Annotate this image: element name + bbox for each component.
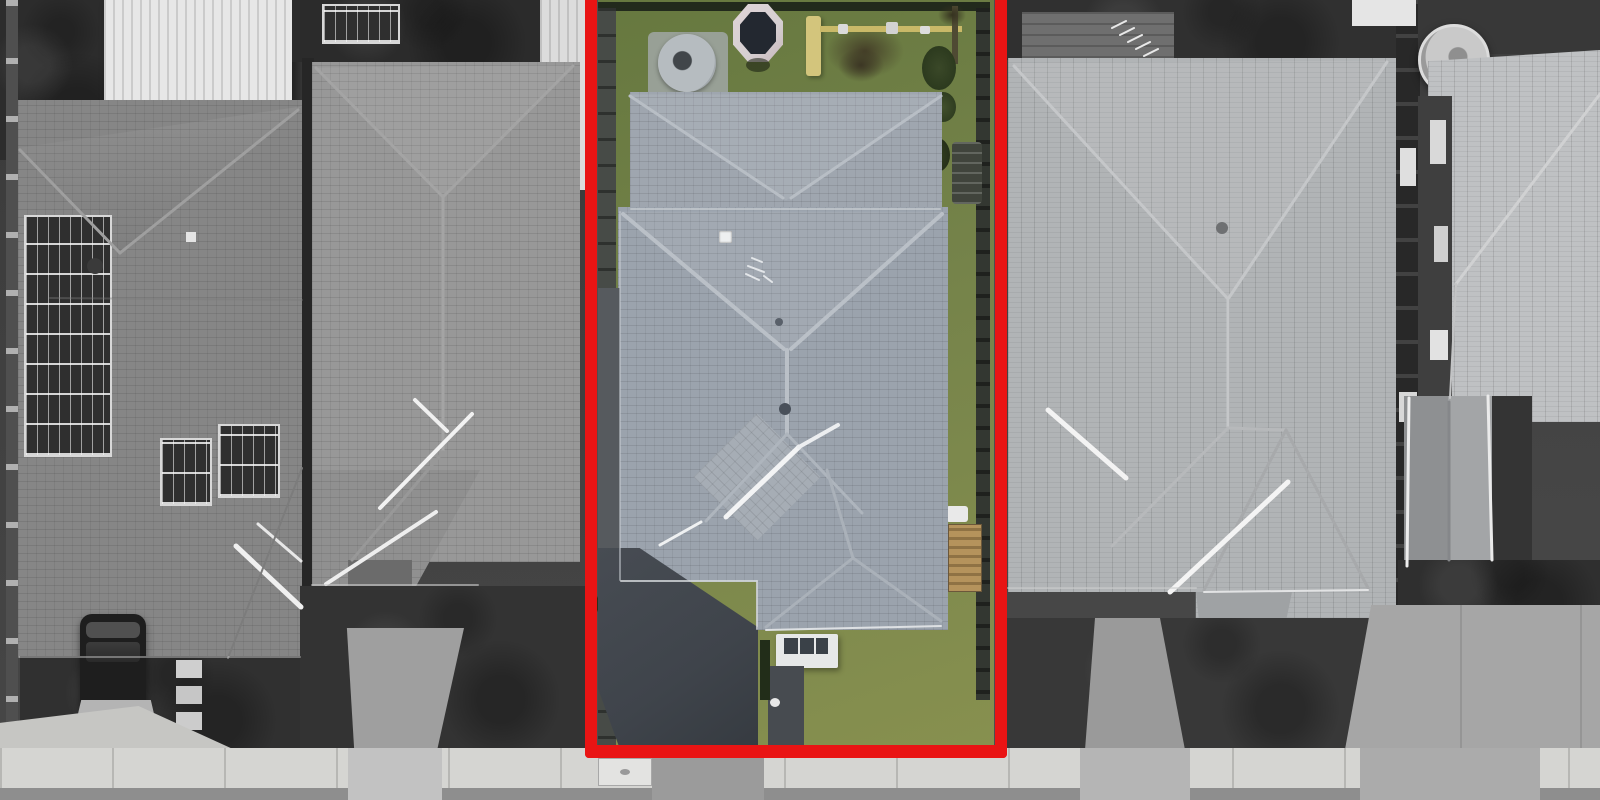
far-right-house-roof (1428, 50, 1600, 422)
driveway-crossover (1080, 748, 1190, 800)
highlight-boundary (585, 0, 1007, 758)
solar-array (24, 215, 112, 457)
driveway-crossover (1360, 748, 1540, 800)
solar-array (160, 438, 212, 506)
stepping-stone (176, 686, 202, 704)
ac-unit (1400, 148, 1416, 186)
far-right-garage-gable (1404, 396, 1492, 568)
near-right-front-garden (1006, 618, 1398, 748)
solar-array (322, 4, 400, 44)
alley-window (1434, 226, 1448, 262)
white-shed-roof (104, 0, 292, 104)
garage-side-dark (1492, 396, 1532, 566)
white-shed-fragment (1352, 0, 1416, 26)
alley-window (1430, 330, 1448, 360)
dark-suv-windshield (86, 642, 140, 662)
dark-suv-roof-highlight (86, 622, 140, 638)
solar-array (218, 424, 280, 498)
utility-pit-handle (620, 769, 630, 775)
stepping-stone (176, 660, 202, 678)
driveway-crossover (348, 748, 442, 800)
aerial-scene (0, 0, 1600, 800)
left-boundary-fence (6, 0, 18, 730)
alley-window (1430, 120, 1446, 164)
roof-access-box (186, 232, 196, 242)
timber-deck (1022, 12, 1174, 58)
